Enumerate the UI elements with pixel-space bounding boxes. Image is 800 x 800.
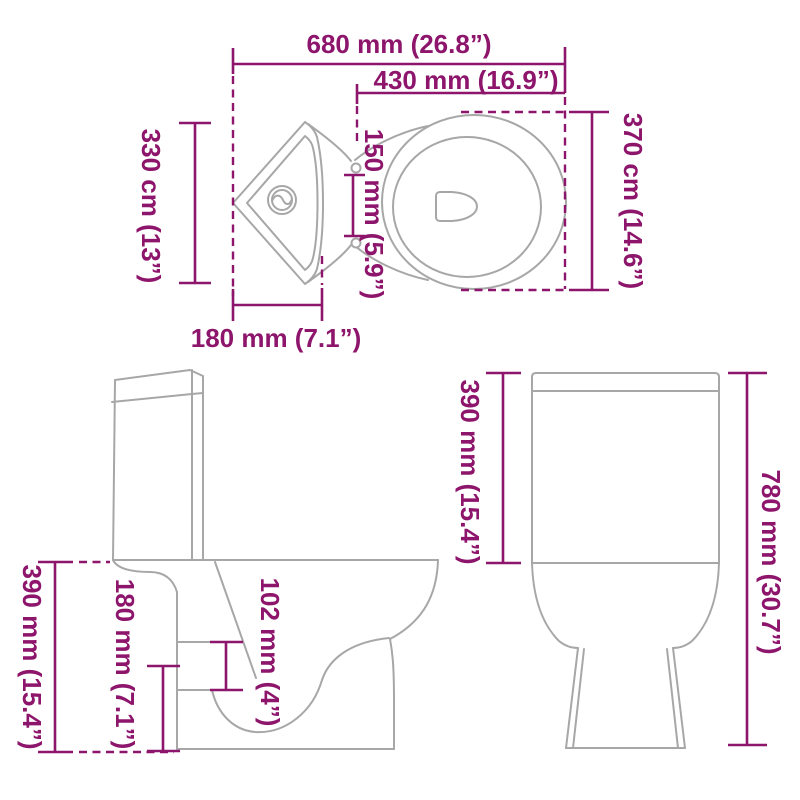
dim-label-outlet-diameter: 102 mm (4”) <box>255 578 285 727</box>
pedestal-left-inner-edge <box>573 649 584 748</box>
water-spot-outline <box>436 192 477 221</box>
toilet-dimension-diagram: 680 mm (26.8”) 430 mm (16.9”) 330 cm (13… <box>0 0 800 800</box>
pedestal-front-edge <box>390 639 394 749</box>
side-view: 390 mm (15.4”) 180 mm (7.1”) 102 mm (4”) <box>17 370 438 752</box>
top-view: 680 mm (26.8”) 430 mm (16.9”) 330 cm (13… <box>136 29 648 353</box>
flush-button-wave-icon <box>272 196 292 204</box>
seat-outer-ring <box>382 115 566 289</box>
top-view-toilet-outline <box>233 115 566 289</box>
front-view-toilet-outline <box>532 373 719 748</box>
dim-label-seat-width: 430 mm (16.9”) <box>374 65 559 95</box>
tank-side-outline <box>113 370 203 560</box>
diagram-canvas: 680 mm (26.8”) 430 mm (16.9”) 330 cm (13… <box>0 0 800 800</box>
pedestal-left-outer-edge <box>566 648 578 748</box>
dim-label-overall-width: 680 mm (26.8”) <box>307 29 492 59</box>
bowl-right-curve <box>673 563 719 648</box>
front-view: 390 mm (15.4”) 780 mm (30.7”) <box>455 373 786 748</box>
pedestal-right-outer-edge <box>673 648 685 748</box>
seat-inner-ring <box>393 137 541 277</box>
dim-label-cistern-depth: 330 cm (13”) <box>136 129 166 284</box>
dim-label-corner-width: 180 mm (7.1”) <box>191 323 362 353</box>
tank-side-lid-line <box>112 393 203 402</box>
cistern-inner-outline <box>247 136 318 270</box>
trapway-curve <box>212 638 389 732</box>
dim-label-bowl-length: 370 cm (14.6”) <box>618 113 648 289</box>
dim-label-outlet-height: 180 mm (7.1”) <box>110 579 140 750</box>
bowl-front-rim-curve <box>390 560 438 639</box>
dim-label-seat-height: 390 mm (15.4”) <box>17 565 47 750</box>
front-view-dimension-lines <box>486 373 767 745</box>
trapway-leader-line <box>215 562 256 678</box>
dim-label-total-height: 780 mm (30.7”) <box>756 470 786 655</box>
dim-label-tank-height: 390 mm (15.4”) <box>455 380 485 565</box>
tank-front-outline <box>532 373 719 563</box>
dim-label-hinge-distance: 150 mm (5.9”) <box>359 129 389 300</box>
pedestal-right-inner-edge <box>667 649 678 748</box>
bowl-left-curve <box>532 563 578 648</box>
